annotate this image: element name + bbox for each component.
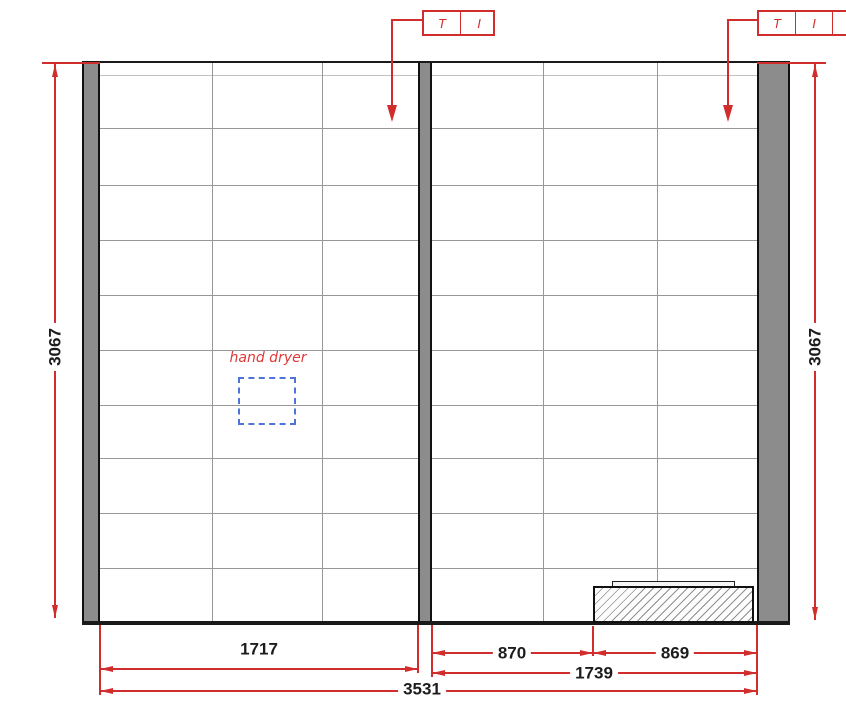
tile-grid-left-panel [100,63,418,621]
tile-grid-line-horizontal [432,128,757,129]
tile-grid-line-horizontal [100,240,418,241]
tile-grid-line-horizontal [432,350,757,351]
tile-grid-line-horizontal [432,185,757,186]
ext-line-bottom [99,625,101,695]
callout-cell: I [461,12,497,34]
dim-arrow-right-icon [744,670,757,676]
tile-grid-line-vertical [322,63,323,621]
dim-line-1717 [100,668,418,670]
tile-grid-line-horizontal [100,128,418,129]
dim-arrow-left-icon [432,670,445,676]
callout-cell: I [796,12,833,34]
tile-grid-line-horizontal [432,568,757,569]
cad-drawing-canvas: hand dryer 3067 3067 1717 870 869 1739 3… [0,0,846,713]
dim-arrow-up-icon [52,64,58,77]
dim-value-869: 869 [656,644,694,663]
callout-cell [833,12,846,34]
callout-cell: T [424,12,461,34]
dim-value-3531: 3531 [398,680,446,699]
callout-tag-right: T I [757,10,846,36]
leader-arrow-down-icon [723,105,733,122]
callout-leader-horizontal [728,19,757,21]
wall-column-middle [418,63,432,621]
dim-value-right-height: 3067 [806,323,825,371]
tile-grid-line-horizontal [100,568,418,569]
tile-grid-line-horizontal [100,458,418,459]
tile-grid-line-vertical [212,63,213,621]
hand-dryer-outline [238,377,296,425]
callout-leader-horizontal [392,19,422,21]
hand-dryer-label: hand dryer [230,350,307,366]
tile-grid-line-horizontal [432,295,757,296]
ext-line-bottom [756,625,758,695]
tile-grid-line-horizontal [432,405,757,406]
wall-column-left [82,63,100,621]
callout-tag-left: T I [422,10,495,36]
dim-arrow-right-icon [580,650,593,656]
tile-grid-line-horizontal [100,75,418,76]
tile-grid-line-horizontal [100,295,418,296]
callout-leader-vertical [391,19,393,107]
dim-value-1739: 1739 [570,664,618,683]
dim-arrow-left-icon [100,688,113,694]
dim-arrow-left-icon [593,650,606,656]
tile-grid-line-horizontal [432,75,757,76]
tile-grid-line-horizontal [432,513,757,514]
dim-arrow-down-icon [52,605,58,618]
tile-grid-line-horizontal [432,458,757,459]
ext-line-top-left [42,62,100,64]
tile-grid-right-panel [432,63,757,621]
dim-value-1717: 1717 [235,640,283,659]
callout-leader-vertical [727,19,729,107]
dim-arrow-right-icon [405,666,418,672]
dim-arrow-left-icon [100,666,113,672]
dim-arrow-up-icon [812,64,818,77]
tile-grid-line-vertical [657,63,658,621]
hatched-counter-block [593,586,754,623]
tile-grid-line-horizontal [100,185,418,186]
dim-arrow-left-icon [432,650,445,656]
dim-arrow-right-icon [744,688,757,694]
leader-arrow-down-icon [387,105,397,122]
dim-value-left-height: 3067 [46,323,65,371]
tile-grid-line-horizontal [100,513,418,514]
dim-arrow-down-icon [812,607,818,620]
callout-cell: T [759,12,796,34]
tile-grid-line-vertical [543,63,544,621]
dim-value-870: 870 [493,644,531,663]
wall-column-right [757,63,790,621]
dim-arrow-right-icon [744,650,757,656]
tile-grid-line-horizontal [432,240,757,241]
